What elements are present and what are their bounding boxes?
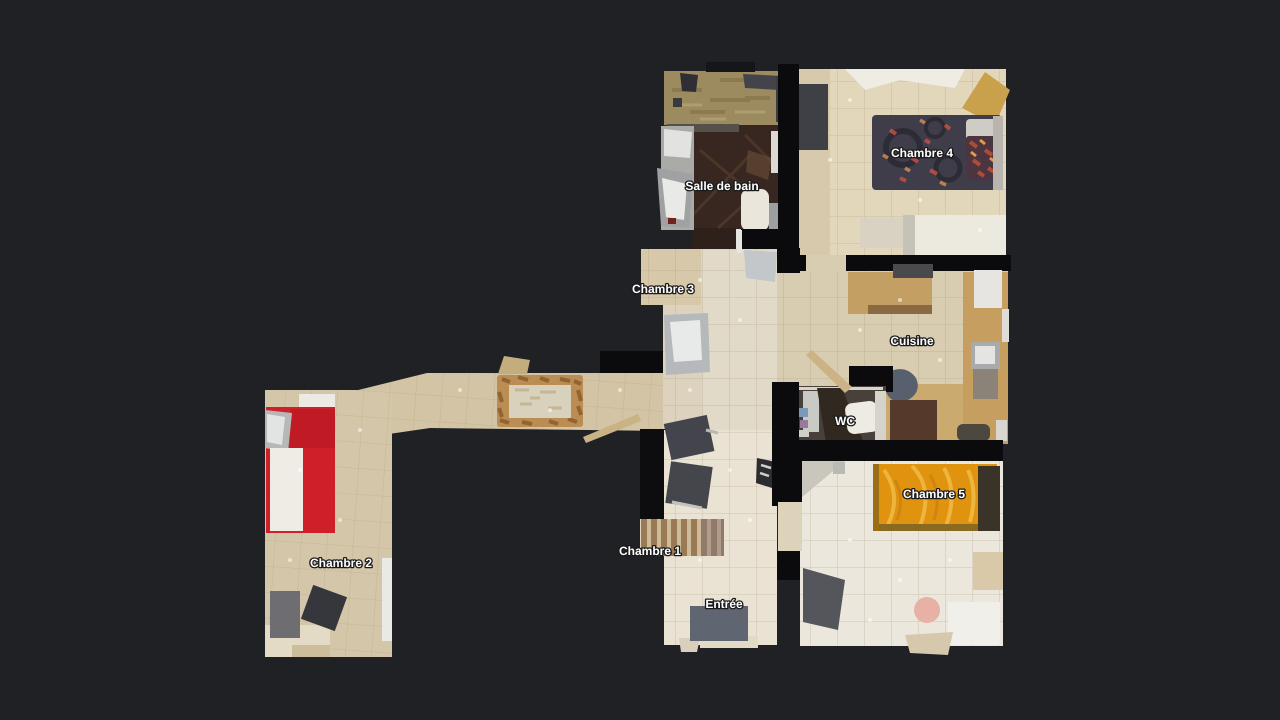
svg-text:Chambre 2: Chambre 2	[310, 556, 372, 570]
svg-text:Entrée: Entrée	[705, 597, 743, 611]
svg-text:Chambre 1: Chambre 1	[619, 544, 681, 558]
svg-text:Chambre 4: Chambre 4	[891, 146, 953, 160]
svg-text:WC: WC	[835, 414, 855, 428]
svg-text:Cuisine: Cuisine	[890, 334, 934, 348]
svg-text:Salle de bain: Salle de bain	[685, 179, 758, 193]
svg-text:Chambre 3: Chambre 3	[632, 282, 694, 296]
svg-text:Chambre 5: Chambre 5	[903, 487, 965, 501]
